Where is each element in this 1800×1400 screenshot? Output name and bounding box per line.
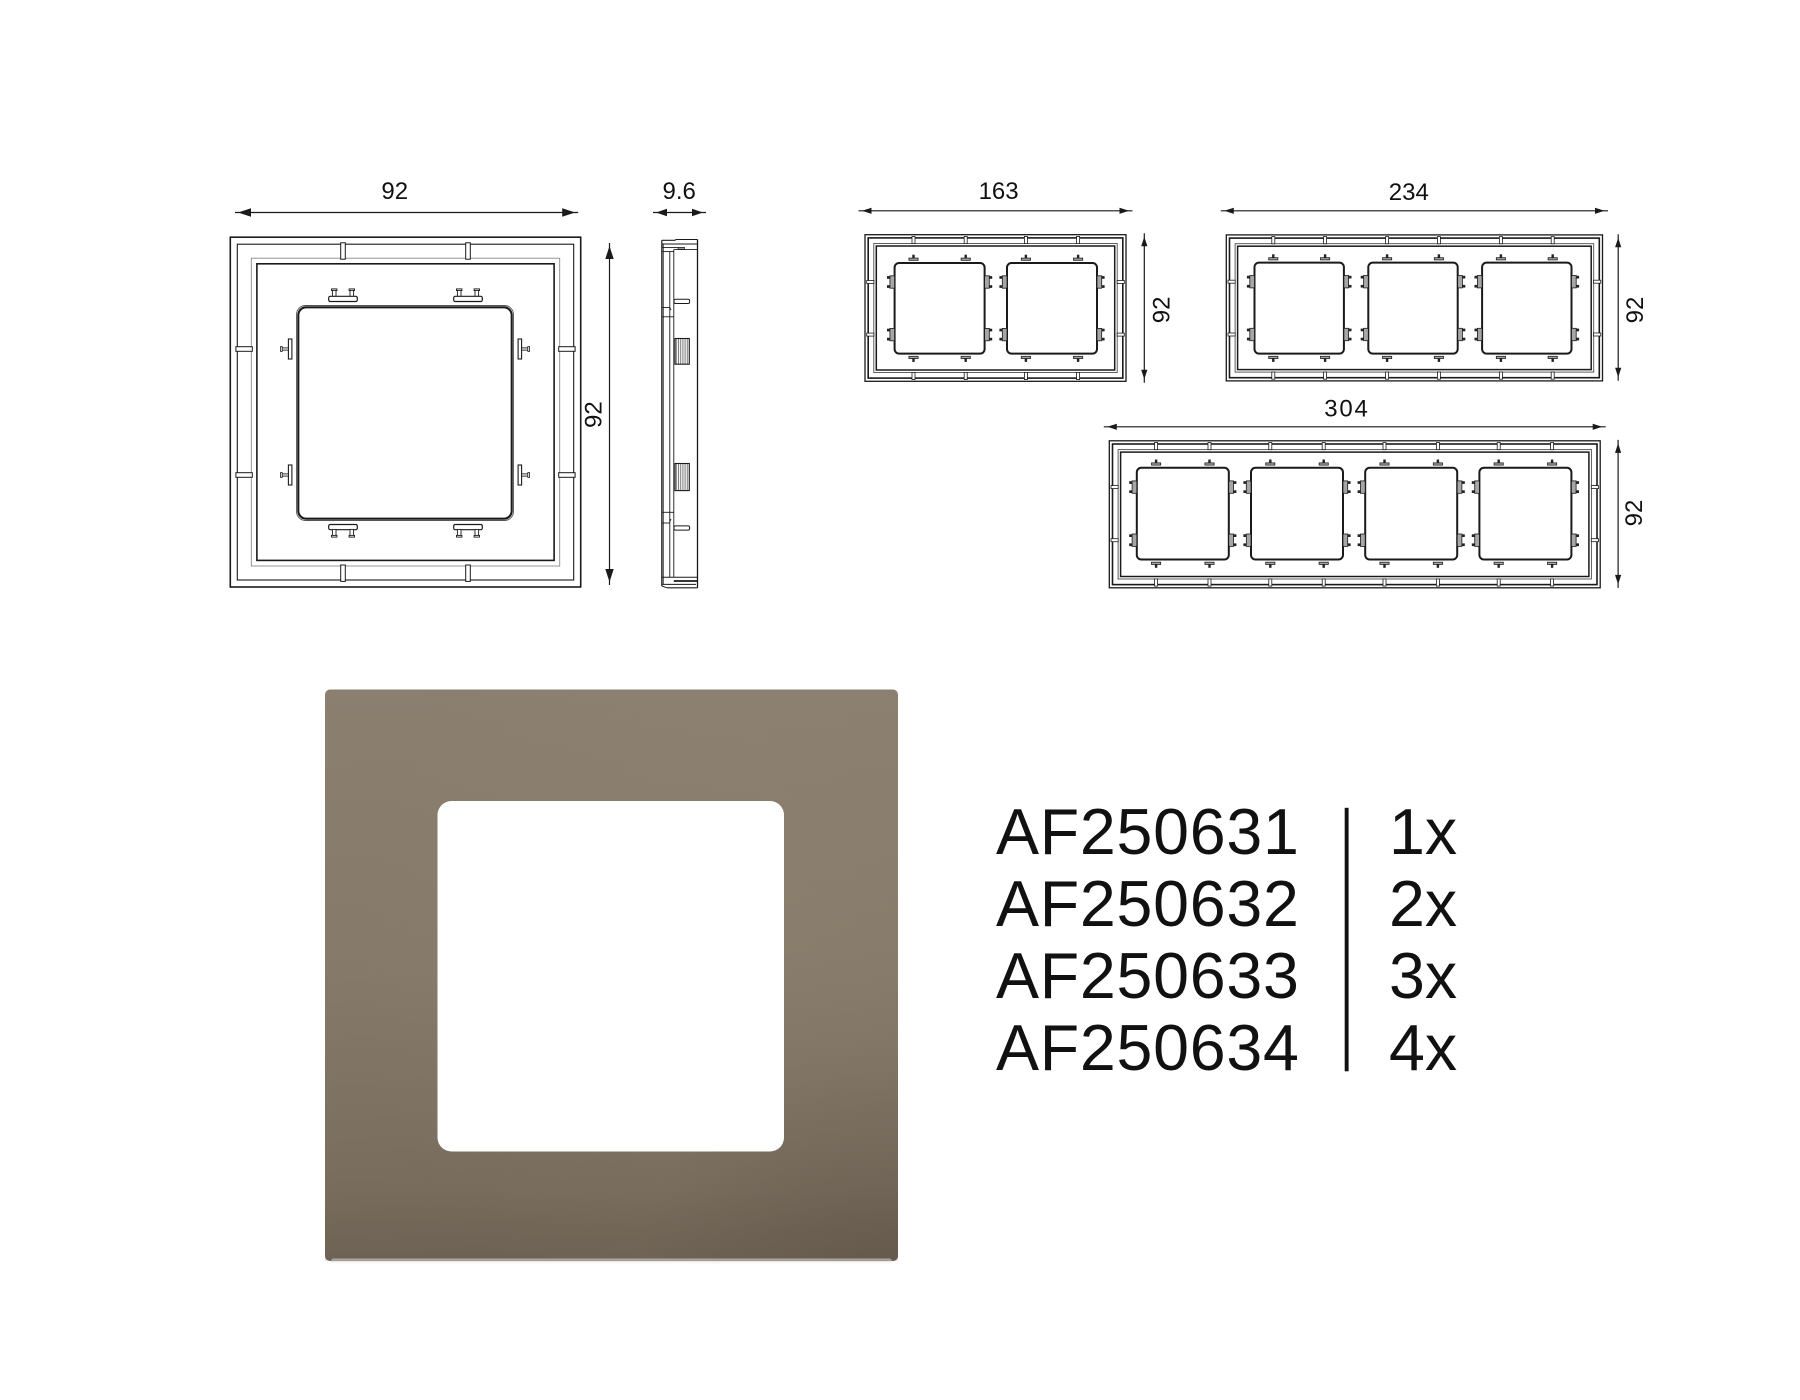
svg-text:4x: 4x: [1389, 1012, 1457, 1084]
svg-text:304: 304: [1324, 396, 1369, 423]
svg-text:AF250634: AF250634: [996, 1012, 1300, 1084]
svg-text:AF250631: AF250631: [996, 796, 1300, 868]
svg-text:92: 92: [381, 178, 408, 205]
svg-text:AF250632: AF250632: [996, 868, 1300, 940]
svg-text:92: 92: [1149, 297, 1176, 324]
svg-text:92: 92: [1622, 297, 1649, 324]
svg-text:1x: 1x: [1389, 796, 1457, 868]
svg-text:3x: 3x: [1389, 940, 1457, 1012]
svg-text:92: 92: [1621, 500, 1648, 527]
svg-text:2x: 2x: [1389, 868, 1457, 940]
svg-text:234: 234: [1389, 179, 1429, 206]
svg-text:9.6: 9.6: [663, 178, 696, 205]
svg-text:92: 92: [581, 401, 608, 428]
svg-text:163: 163: [979, 178, 1019, 205]
svg-text:AF250633: AF250633: [996, 940, 1300, 1012]
